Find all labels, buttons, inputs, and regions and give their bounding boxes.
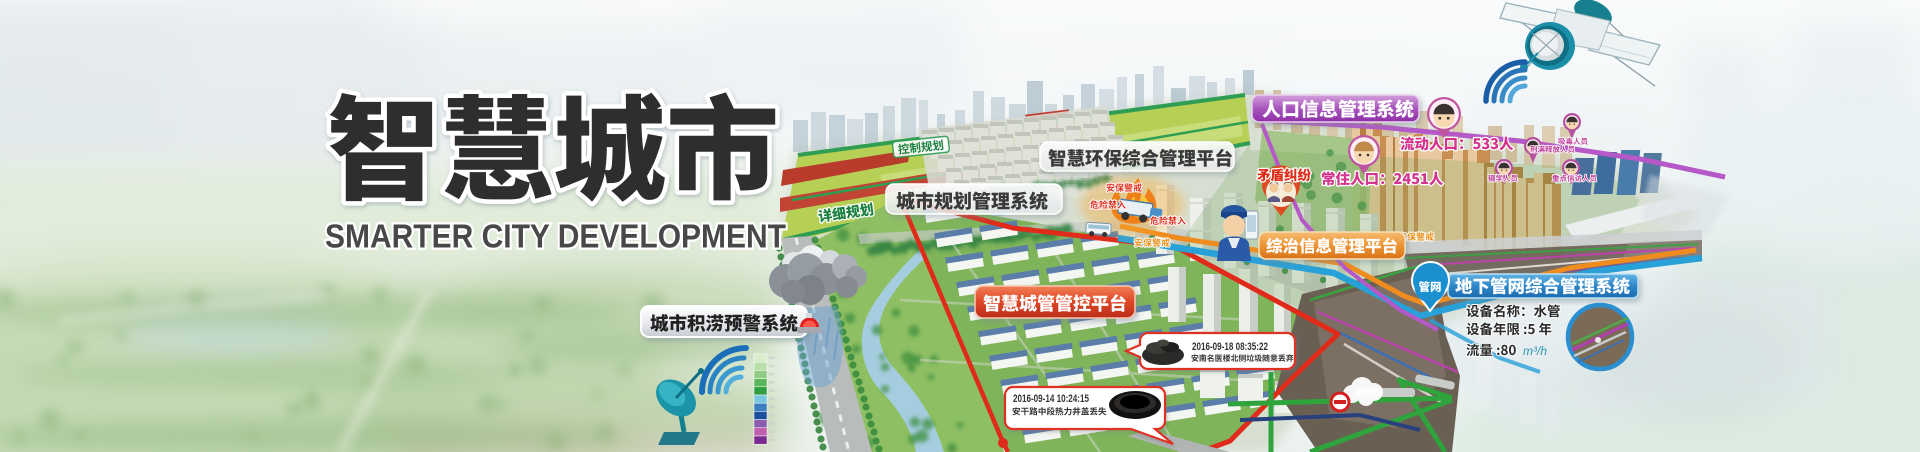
svg-text:2016-09-18 08:35:22: 2016-09-18 08:35:22 xyxy=(1192,341,1268,353)
svg-text:m³/h: m³/h xyxy=(1523,344,1547,358)
svg-text:SMARTER CITY DEVELOPMENT: SMARTER CITY DEVELOPMENT xyxy=(325,218,786,255)
svg-text:2016-09-14 10:24:15: 2016-09-14 10:24:15 xyxy=(1013,393,1089,405)
